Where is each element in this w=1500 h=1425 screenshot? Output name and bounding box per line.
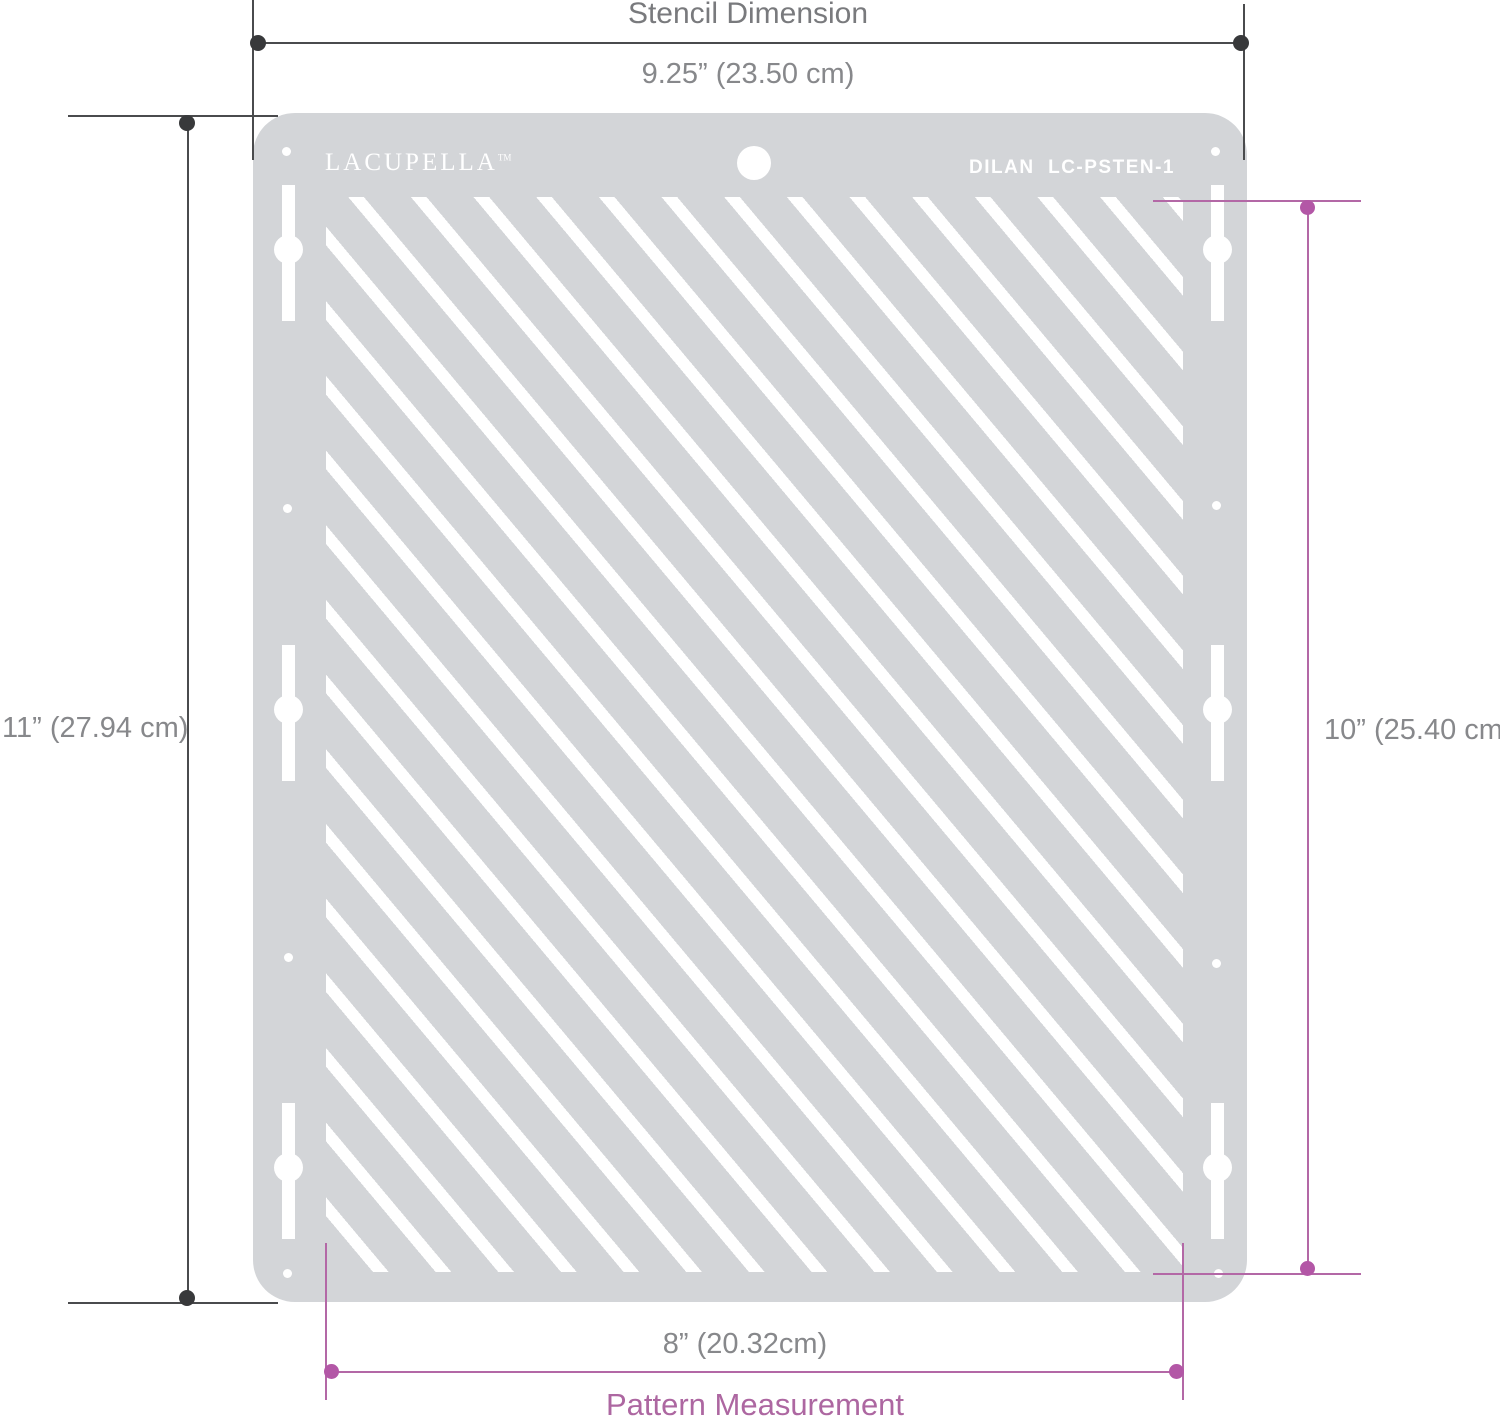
registration-slot: [274, 185, 303, 321]
slot-circle: [1203, 695, 1232, 724]
model-number: DILAN LC-PSTEN-1: [969, 157, 1175, 179]
slot-circle: [274, 1153, 303, 1182]
registration-slot: [1203, 645, 1232, 781]
pin-hole: [1212, 959, 1221, 968]
pattern-height-dimension-line: [1307, 207, 1309, 1269]
diagonal-stripe-pattern: [326, 197, 1183, 1272]
registration-slot: [1203, 1103, 1232, 1239]
dimension-endpoint-dot: [179, 1290, 195, 1306]
width-dimension-line: [258, 42, 1241, 44]
pin-hole: [283, 1269, 292, 1278]
pattern-width-dimension-line: [332, 1371, 1177, 1373]
registration-slot: [274, 645, 303, 781]
pattern-endpoint-dot: [1169, 1364, 1184, 1379]
pin-hole: [284, 953, 293, 962]
extension-line: [252, 0, 254, 160]
registration-slot: [1203, 185, 1232, 321]
trademark-mark: TM: [498, 153, 512, 163]
pin-hole: [1212, 501, 1221, 510]
pattern-extension-line: [1153, 200, 1361, 202]
pattern-measurement-title: Pattern Measurement: [606, 1387, 904, 1423]
pattern-extension-line: [1153, 1273, 1361, 1275]
pattern-extension-line: [1182, 1243, 1184, 1400]
dimension-endpoint-dot: [250, 35, 266, 51]
slot-circle: [1203, 235, 1232, 264]
pattern-endpoint-dot: [1300, 1261, 1315, 1276]
pin-hole: [282, 147, 291, 156]
dimension-endpoint-dot: [179, 115, 195, 131]
pattern-width-label: 8” (20.32cm): [663, 1328, 827, 1361]
stencil-plate: LACUPELLATM DILAN LC-PSTEN-1: [253, 113, 1247, 1302]
hang-hole: [737, 146, 771, 180]
pattern-endpoint-dot: [324, 1364, 339, 1379]
pattern-height-label: 10” (25.40 cm): [1324, 714, 1500, 747]
stencil-width-label: 9.25” (23.50 cm): [642, 58, 855, 91]
extension-line: [68, 115, 278, 117]
brand-logo: LACUPELLATM: [325, 149, 511, 177]
pin-hole: [283, 504, 292, 513]
slot-circle: [274, 235, 303, 264]
height-dimension-line: [187, 123, 189, 1299]
extension-line: [68, 1302, 278, 1304]
stencil-dimension-title: Stencil Dimension: [628, 0, 868, 31]
product-dimension-diagram: LACUPELLATM DILAN LC-PSTEN-1: [0, 0, 1500, 1425]
pin-hole: [1211, 147, 1220, 156]
extension-line: [1243, 4, 1245, 160]
slot-circle: [274, 695, 303, 724]
brand-text: LACUPELLA: [325, 149, 498, 176]
slot-circle: [1203, 1153, 1232, 1182]
stencil-height-label: 11” (27.94 cm): [2, 712, 188, 745]
dimension-endpoint-dot: [1233, 35, 1249, 51]
pattern-endpoint-dot: [1300, 200, 1315, 215]
registration-slot: [274, 1103, 303, 1239]
